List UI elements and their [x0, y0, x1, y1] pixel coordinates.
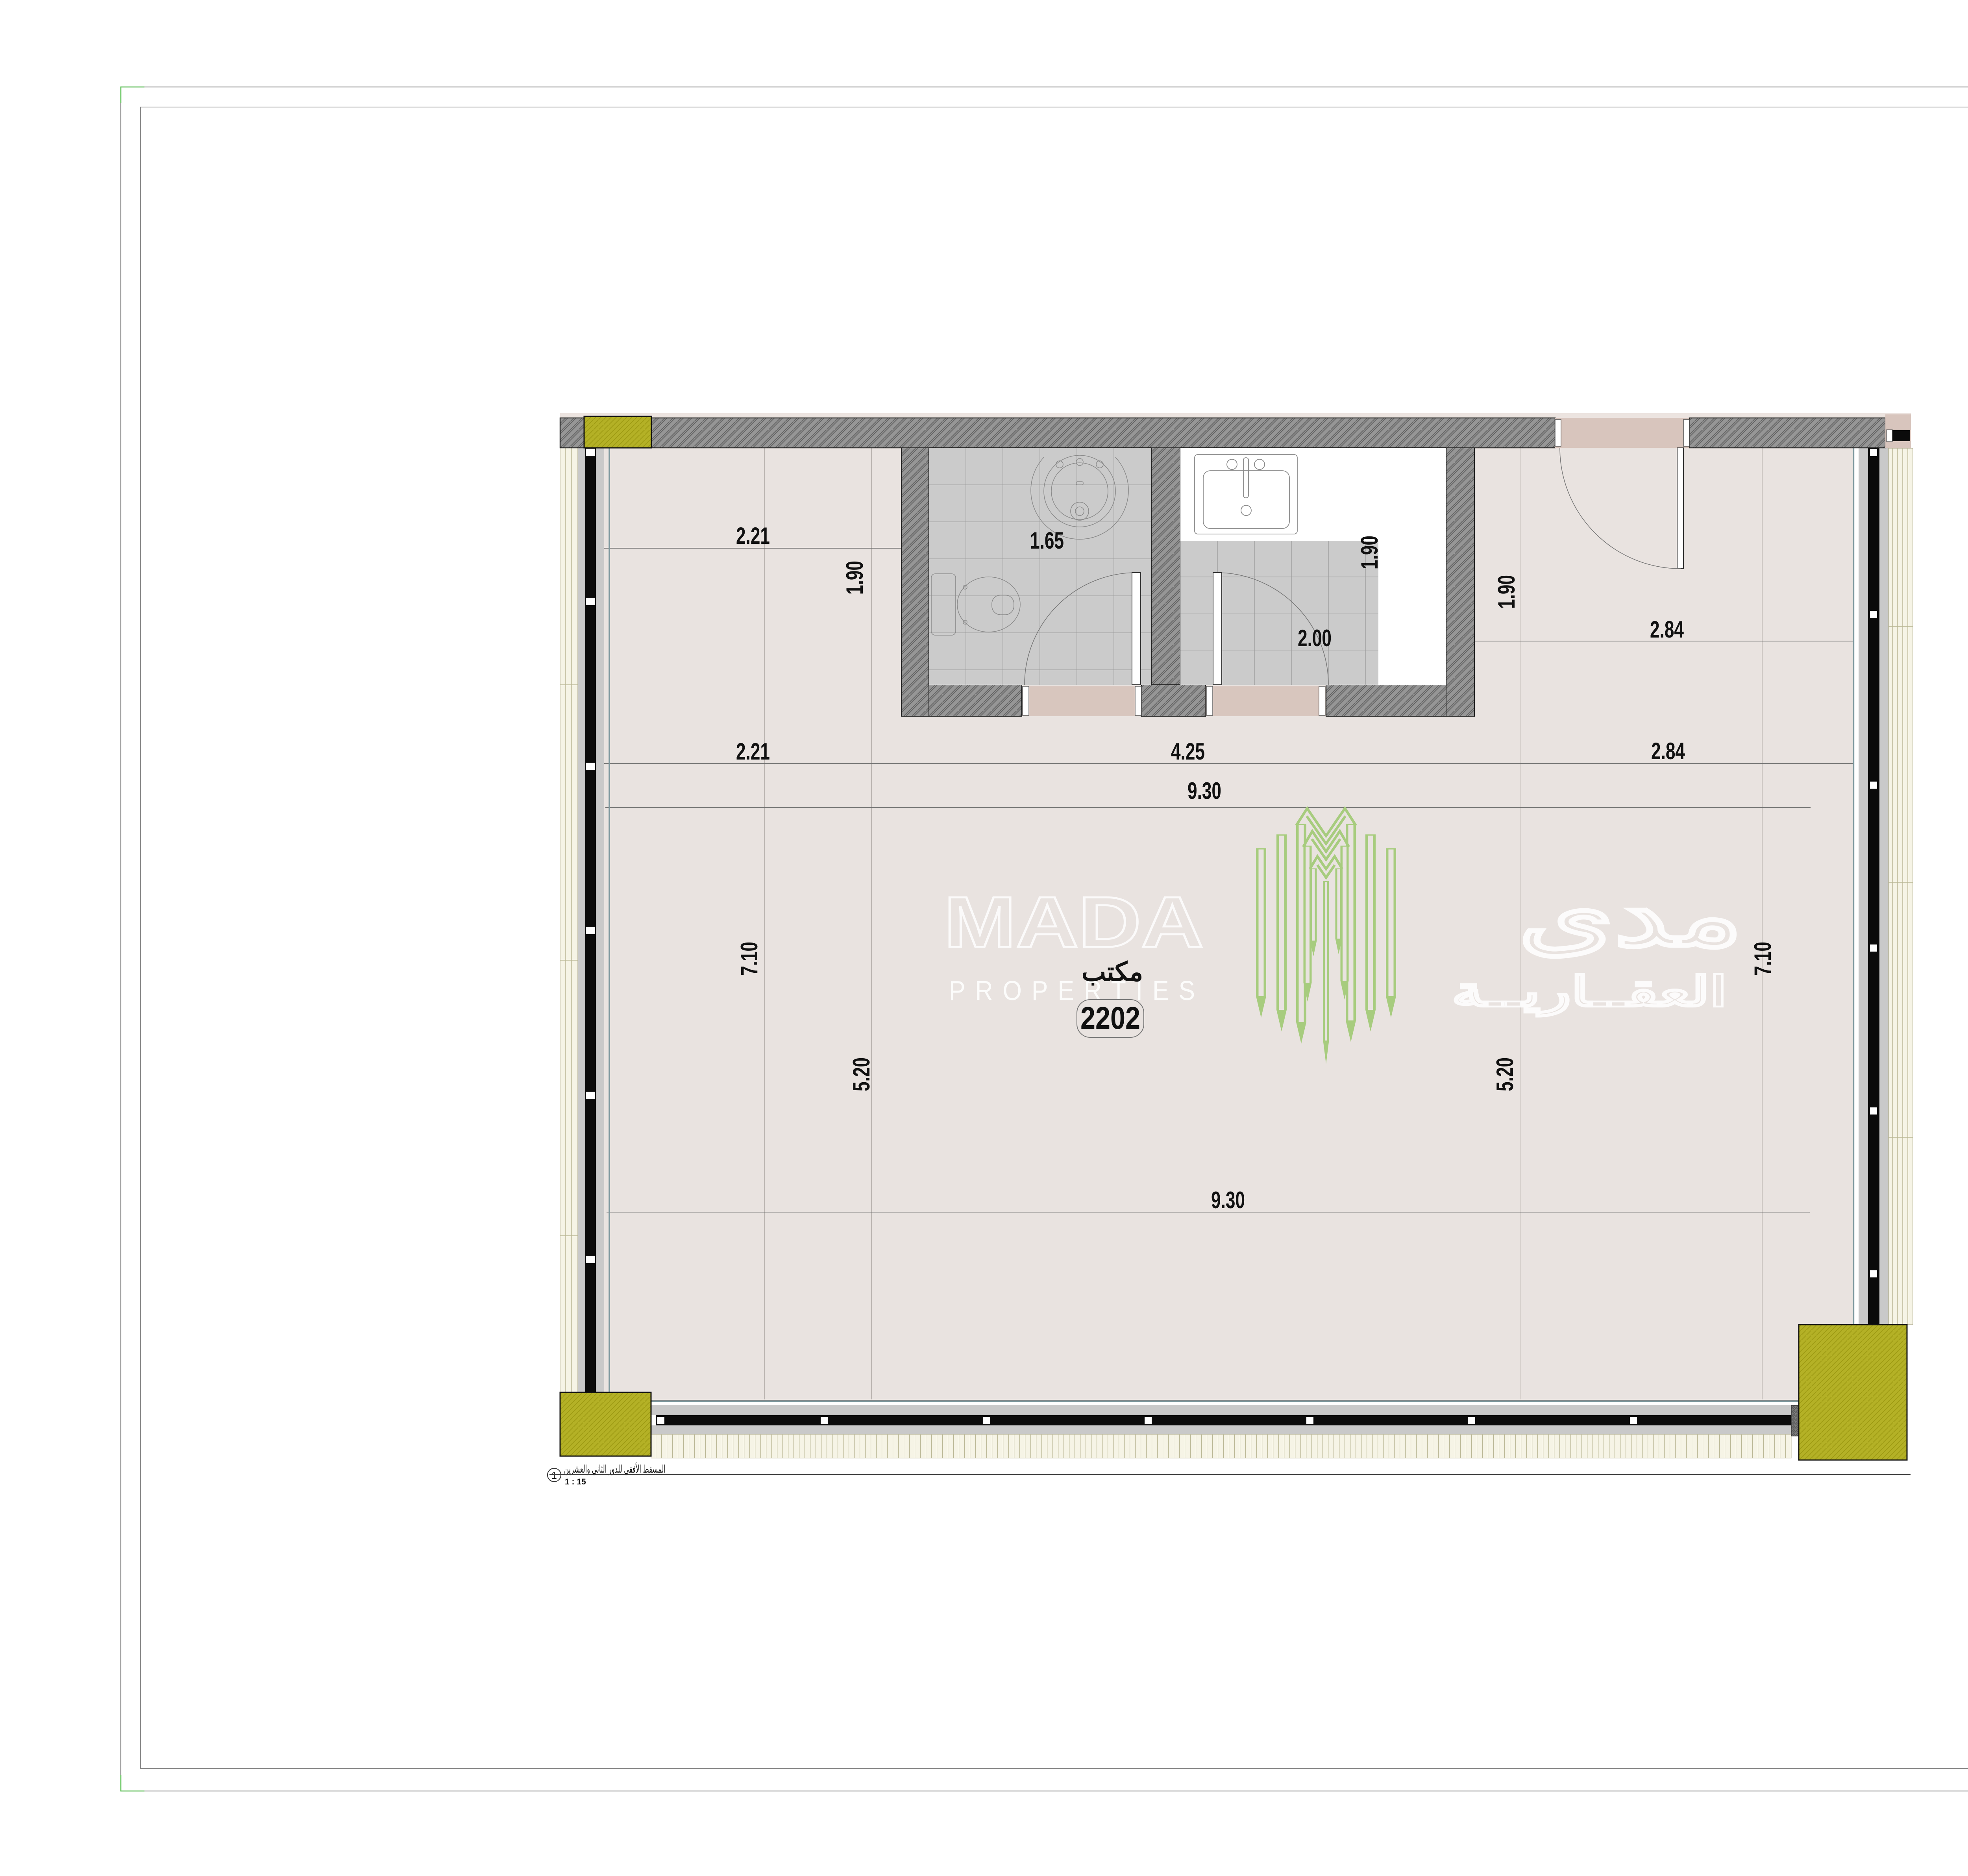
svg-text:مدى: مدى — [1519, 869, 1743, 963]
svg-text:2.21: 2.21 — [736, 738, 770, 765]
svg-text:5.20: 5.20 — [848, 1057, 875, 1091]
svg-text:7.10: 7.10 — [1750, 942, 1776, 976]
svg-text:مكتب: مكتب — [1082, 957, 1143, 986]
svg-text:1.90: 1.90 — [842, 561, 868, 595]
svg-text:العقــاريــة: العقــاريــة — [1452, 969, 1727, 1017]
svg-text:1 : 15: 1 : 15 — [565, 1477, 586, 1486]
svg-text:2.21: 2.21 — [736, 523, 770, 549]
svg-text:PROPERTIES: PROPERTIES — [949, 975, 1205, 1006]
svg-text:2.00: 2.00 — [1298, 625, 1332, 651]
svg-text:2.84: 2.84 — [1651, 738, 1685, 764]
svg-text:2.84: 2.84 — [1650, 616, 1684, 643]
svg-text:9.30: 9.30 — [1211, 1187, 1245, 1213]
svg-text:المسقط الأفقي للدور الثاني وال: المسقط الأفقي للدور الثاني والعشرين — [564, 1462, 666, 1475]
svg-text:1.90: 1.90 — [1356, 536, 1383, 569]
svg-text:9.30: 9.30 — [1187, 778, 1221, 804]
svg-text:MADA: MADA — [944, 882, 1204, 962]
svg-text:1: 1 — [551, 1470, 557, 1481]
svg-text:7.10: 7.10 — [736, 942, 762, 976]
svg-text:2202: 2202 — [1080, 1000, 1140, 1035]
svg-text:5.20: 5.20 — [1492, 1057, 1518, 1091]
svg-text:1.65: 1.65 — [1030, 527, 1064, 554]
svg-text:4.25: 4.25 — [1171, 738, 1205, 765]
svg-text:1.90: 1.90 — [1493, 575, 1520, 609]
